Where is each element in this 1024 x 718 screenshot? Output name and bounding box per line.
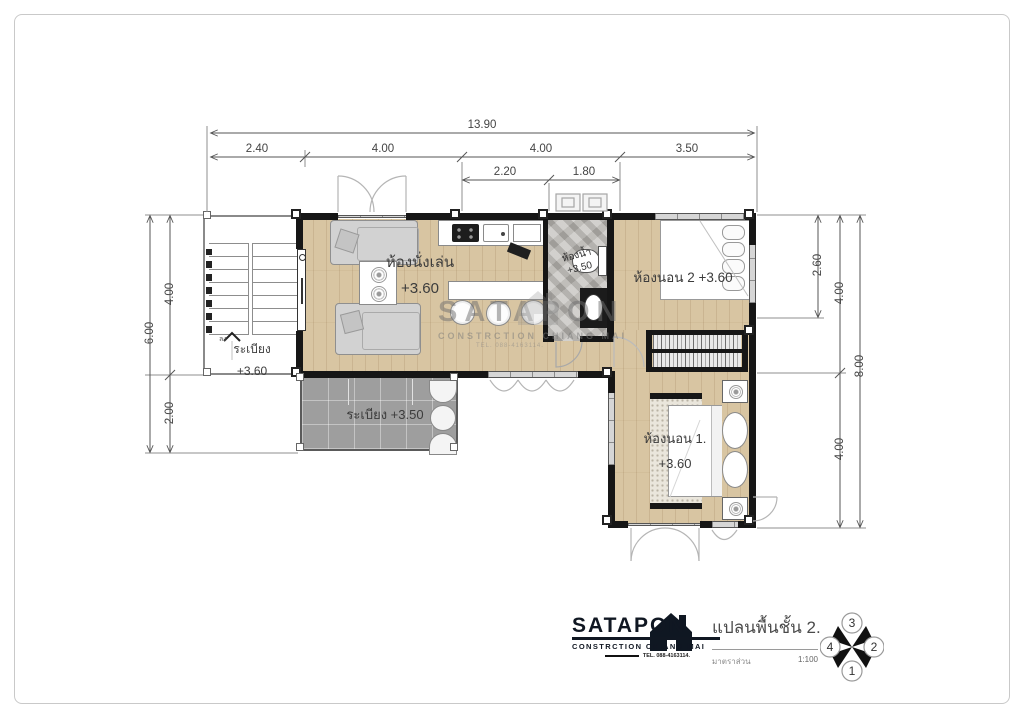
column-marker (538, 209, 548, 219)
orientation-number-right: 2 (871, 640, 878, 654)
stair-direction-note: ลง (219, 334, 227, 345)
door-gap-bedroom1-bottom (628, 523, 700, 526)
dim-left-seg1: 4.00 (164, 272, 176, 316)
orientation-number-left: 4 (827, 640, 834, 654)
upper-balcony-label: ระเบียง +3.60 (212, 340, 292, 378)
wardrobe-bar-bottom (646, 367, 748, 372)
column-marker (744, 325, 754, 335)
orientation-symbol: 3 2 1 4 (820, 612, 884, 684)
wall-top-2 (406, 213, 655, 220)
door-gap-top-living (338, 215, 406, 218)
living-room-label: ห้องนั่งเล่น +3.60 (345, 250, 495, 297)
nightstand-bottom-ornament (729, 502, 743, 516)
column-marker (744, 209, 754, 219)
bedroom2-name: ห้องนอน 2 (633, 270, 694, 285)
stair-door-knob-icon (299, 254, 306, 261)
dim-top-seg2: 4.00 (361, 143, 405, 155)
wardrobe-clothes-row2 (653, 353, 741, 368)
stair-treads (209, 243, 297, 335)
bedroom2-level: +3.60 (699, 270, 733, 285)
logo-rule (605, 655, 639, 657)
orientation-number-top: 3 (849, 616, 856, 630)
wall-right-b (749, 303, 756, 528)
stove-cooktop (452, 224, 479, 242)
lower-balcony-level: +3.50 (391, 407, 424, 422)
column-marker (602, 367, 612, 377)
bedroom1-level: +3.60 (630, 456, 720, 471)
stair-handrail (206, 249, 212, 333)
dim-right-seg2: 4.00 (834, 427, 846, 471)
column-marker-small (296, 443, 304, 451)
balcony-door-line-1 (348, 379, 349, 405)
column-marker (450, 209, 460, 219)
dim-right-inner: 2.60 (812, 243, 824, 287)
sofa-bottom-cushion-line (362, 312, 420, 350)
bed1-pillow-2 (722, 451, 748, 488)
watermark: SATAPON CONSTRCTION CHIANG MAI TEL. 088-… (438, 296, 668, 349)
logo-brand-tel: TEL. 088-4163114. (572, 653, 690, 659)
counter-cabinet (513, 224, 541, 242)
living-room-level: +3.60 (345, 280, 495, 297)
scale-value: 1:100 (798, 655, 818, 668)
sofa-bottom (335, 303, 421, 355)
column-marker-small (203, 211, 211, 219)
window-bedroom1-left (608, 393, 615, 465)
orientation-symbol-graphic: 3 2 1 4 (820, 612, 884, 684)
column-marker (744, 515, 754, 525)
window-living-bottom (488, 371, 578, 378)
bed2-pillow-1 (722, 225, 745, 240)
dim-left-total: 6.00 (144, 311, 156, 355)
dim-top-total: 13.90 (460, 119, 504, 131)
stair-door-handle (301, 278, 303, 304)
column-marker-small (203, 368, 211, 376)
dim-top-sub2: 1.80 (562, 166, 606, 178)
stair-stringer (248, 243, 253, 335)
column-marker-small (450, 443, 458, 451)
logo-brand-subtitle: CONSTRCTION CHIANG MAI (572, 642, 720, 651)
window-right-bedroom2 (749, 245, 756, 303)
drawing-title: แปลนพื้นชั้น 2. (712, 614, 822, 641)
bedroom1-label: ห้องนอน 1. +3.60 (630, 428, 720, 471)
lower-balcony-name: ระเบียง (346, 407, 387, 422)
wardrobe-bar-mid (646, 349, 748, 353)
stair-door-leaf (297, 249, 306, 331)
window-bedroom1-bottom (712, 521, 738, 528)
watermark-house-icon (516, 288, 560, 326)
lower-balcony-label: ระเบียง +3.50 (330, 404, 440, 425)
column-marker-small (296, 373, 304, 381)
column-marker (602, 515, 612, 525)
column-marker (291, 209, 301, 219)
sofa-bottom-pillow (340, 310, 364, 334)
balcony-door-line-2 (412, 379, 413, 405)
bedroom1-name: ห้องนอน 1. (630, 428, 720, 449)
scale-label: มาตราส่วน (712, 655, 751, 668)
wall-living-bottom-a (296, 371, 488, 378)
living-room-name: ห้องนั่งเล่น (345, 250, 495, 274)
bedroom2-label: ห้องนอน 2 +3.60 (618, 266, 748, 288)
nightstand-top (722, 380, 748, 403)
dim-right-seg1: 4.00 (834, 271, 846, 315)
dim-top-seg1: 2.40 (235, 143, 279, 155)
title-block: SATAPON CONSTRCTION CHIANG MAI TEL. 088-… (572, 610, 932, 685)
column-marker (602, 209, 612, 219)
logo-tel-text: TEL. 088-4163114. (643, 653, 690, 659)
kitchen-sink (483, 224, 509, 242)
watermark-brand-subtitle: CONSTRCTION CHIANG MAI (438, 331, 668, 341)
title-divider (712, 649, 818, 650)
sink-faucet-dot (501, 232, 505, 236)
dim-top-seg3: 4.00 (519, 143, 563, 155)
upper-balcony-level: +3.60 (212, 364, 292, 378)
wardrobe-post-right (742, 330, 748, 372)
dim-left-seg2: 2.00 (164, 391, 176, 435)
drawing-sheet: 13.90 2.40 4.00 4.00 3.50 2.20 1.80 6.00… (0, 0, 1024, 718)
dim-top-sub1: 2.20 (483, 166, 527, 178)
bed2-pillow-2 (722, 242, 745, 257)
dim-right-total: 8.00 (854, 344, 866, 388)
wall-bedroom1-bottom-b (700, 521, 712, 528)
bed1-rug-edge-bottom (650, 503, 702, 509)
nightstand-top-ornament (729, 385, 743, 399)
bed1-rug-edge-top (650, 393, 702, 399)
column-marker-small (450, 373, 458, 381)
bed1-pillow-1 (722, 412, 748, 449)
dim-top-seg4: 3.50 (665, 143, 709, 155)
watermark-brand-tel: TEL. 088-4163114. (438, 343, 668, 349)
logo-brand-name: SATAPON (572, 615, 720, 640)
orientation-number-bottom: 1 (849, 664, 856, 678)
window-top-bedroom2 (655, 213, 745, 220)
